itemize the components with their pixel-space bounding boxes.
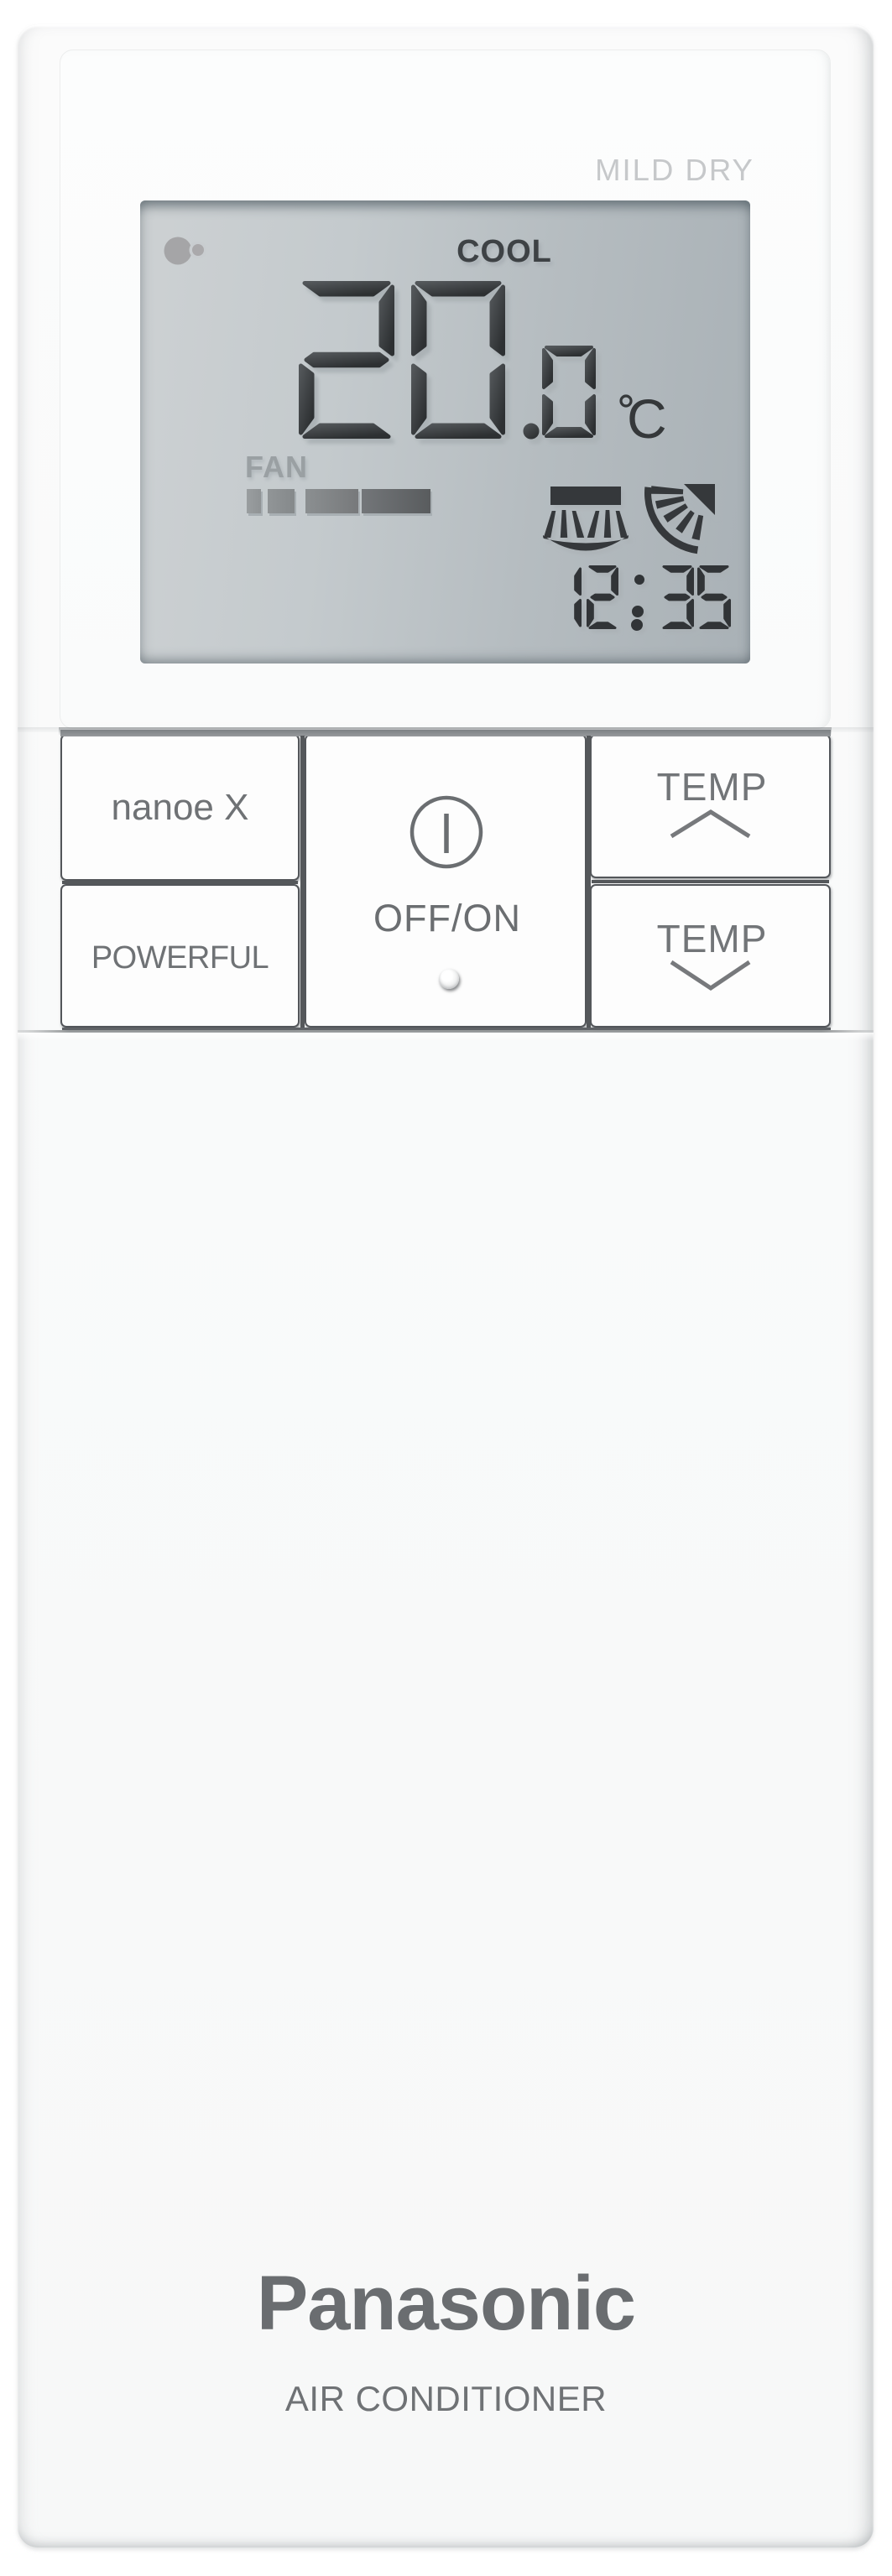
svg-text:MILD DRY: MILD DRY <box>595 153 754 187</box>
svg-text:COOL: COOL <box>456 234 552 269</box>
svg-text:C: C <box>627 388 667 450</box>
svg-text:FAN: FAN <box>245 450 308 484</box>
